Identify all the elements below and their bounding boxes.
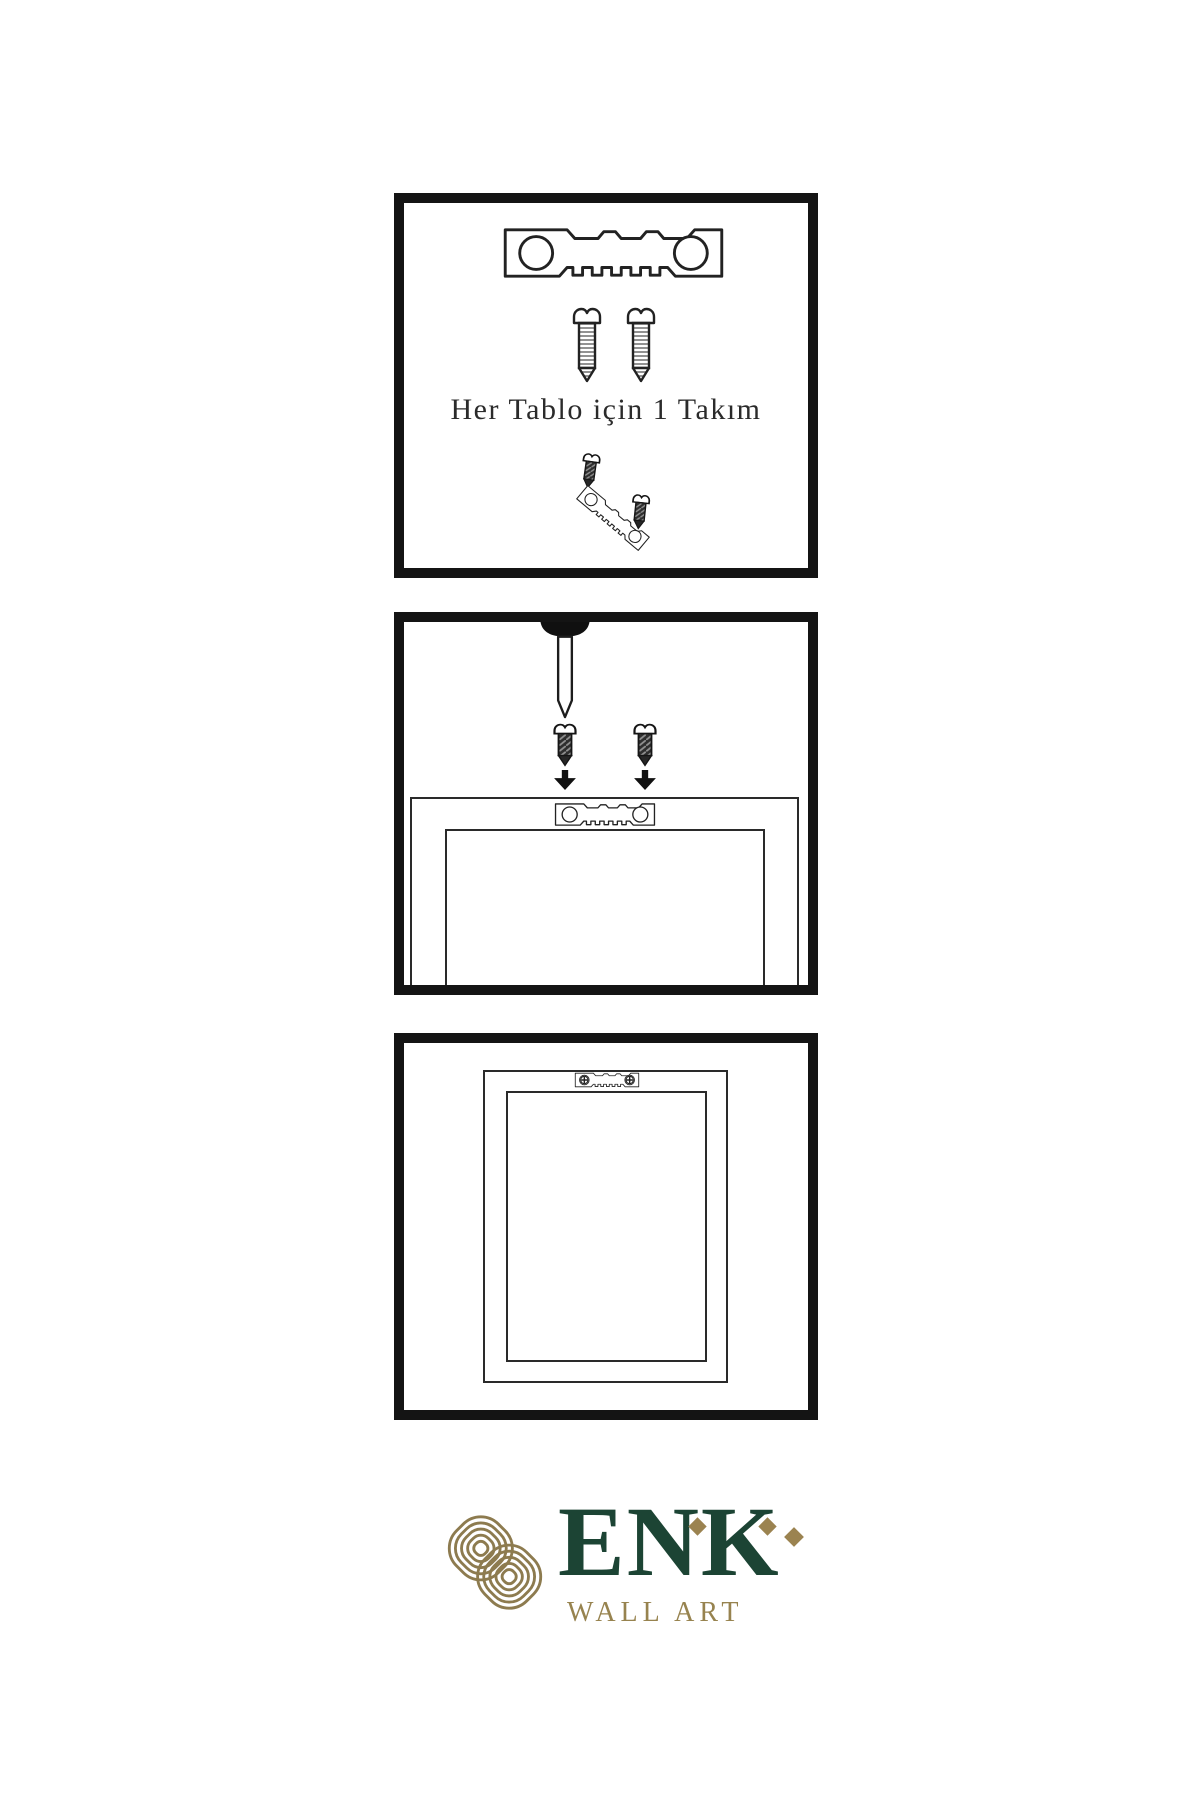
panel-hardware-kit: Her Tablo için 1 Takım — [394, 193, 818, 578]
panel-install-step — [394, 612, 818, 995]
frame-back-inner-line — [445, 829, 765, 995]
brand-name: ENK — [558, 1492, 781, 1592]
screw-icon — [569, 306, 605, 384]
screw-icon — [623, 306, 659, 384]
sawtooth-hanger-icon — [552, 801, 658, 828]
knot-logo-icon — [433, 1500, 557, 1625]
brand-subtitle: WALL ART — [567, 1597, 744, 1629]
kit-caption: Her Tablo için 1 Takım — [404, 393, 808, 427]
arrow-down-icon — [633, 770, 657, 790]
arrow-down-icon — [553, 770, 577, 790]
panel-mounted-frame — [394, 1033, 818, 1420]
screw-icon — [628, 493, 652, 531]
brand-logotype: ENK — [558, 1492, 807, 1592]
screw-icon — [552, 723, 578, 767]
screw-icon — [632, 723, 658, 767]
frame-back-inner-line — [506, 1091, 707, 1362]
sawtooth-hanger-with-screws-icon — [573, 1071, 641, 1089]
instruction-sheet: Her Tablo için 1 Takım — [0, 0, 1200, 1800]
diamond-icon — [784, 1527, 804, 1547]
sawtooth-hanger-icon — [497, 224, 730, 282]
wall-nail-icon — [537, 622, 593, 720]
